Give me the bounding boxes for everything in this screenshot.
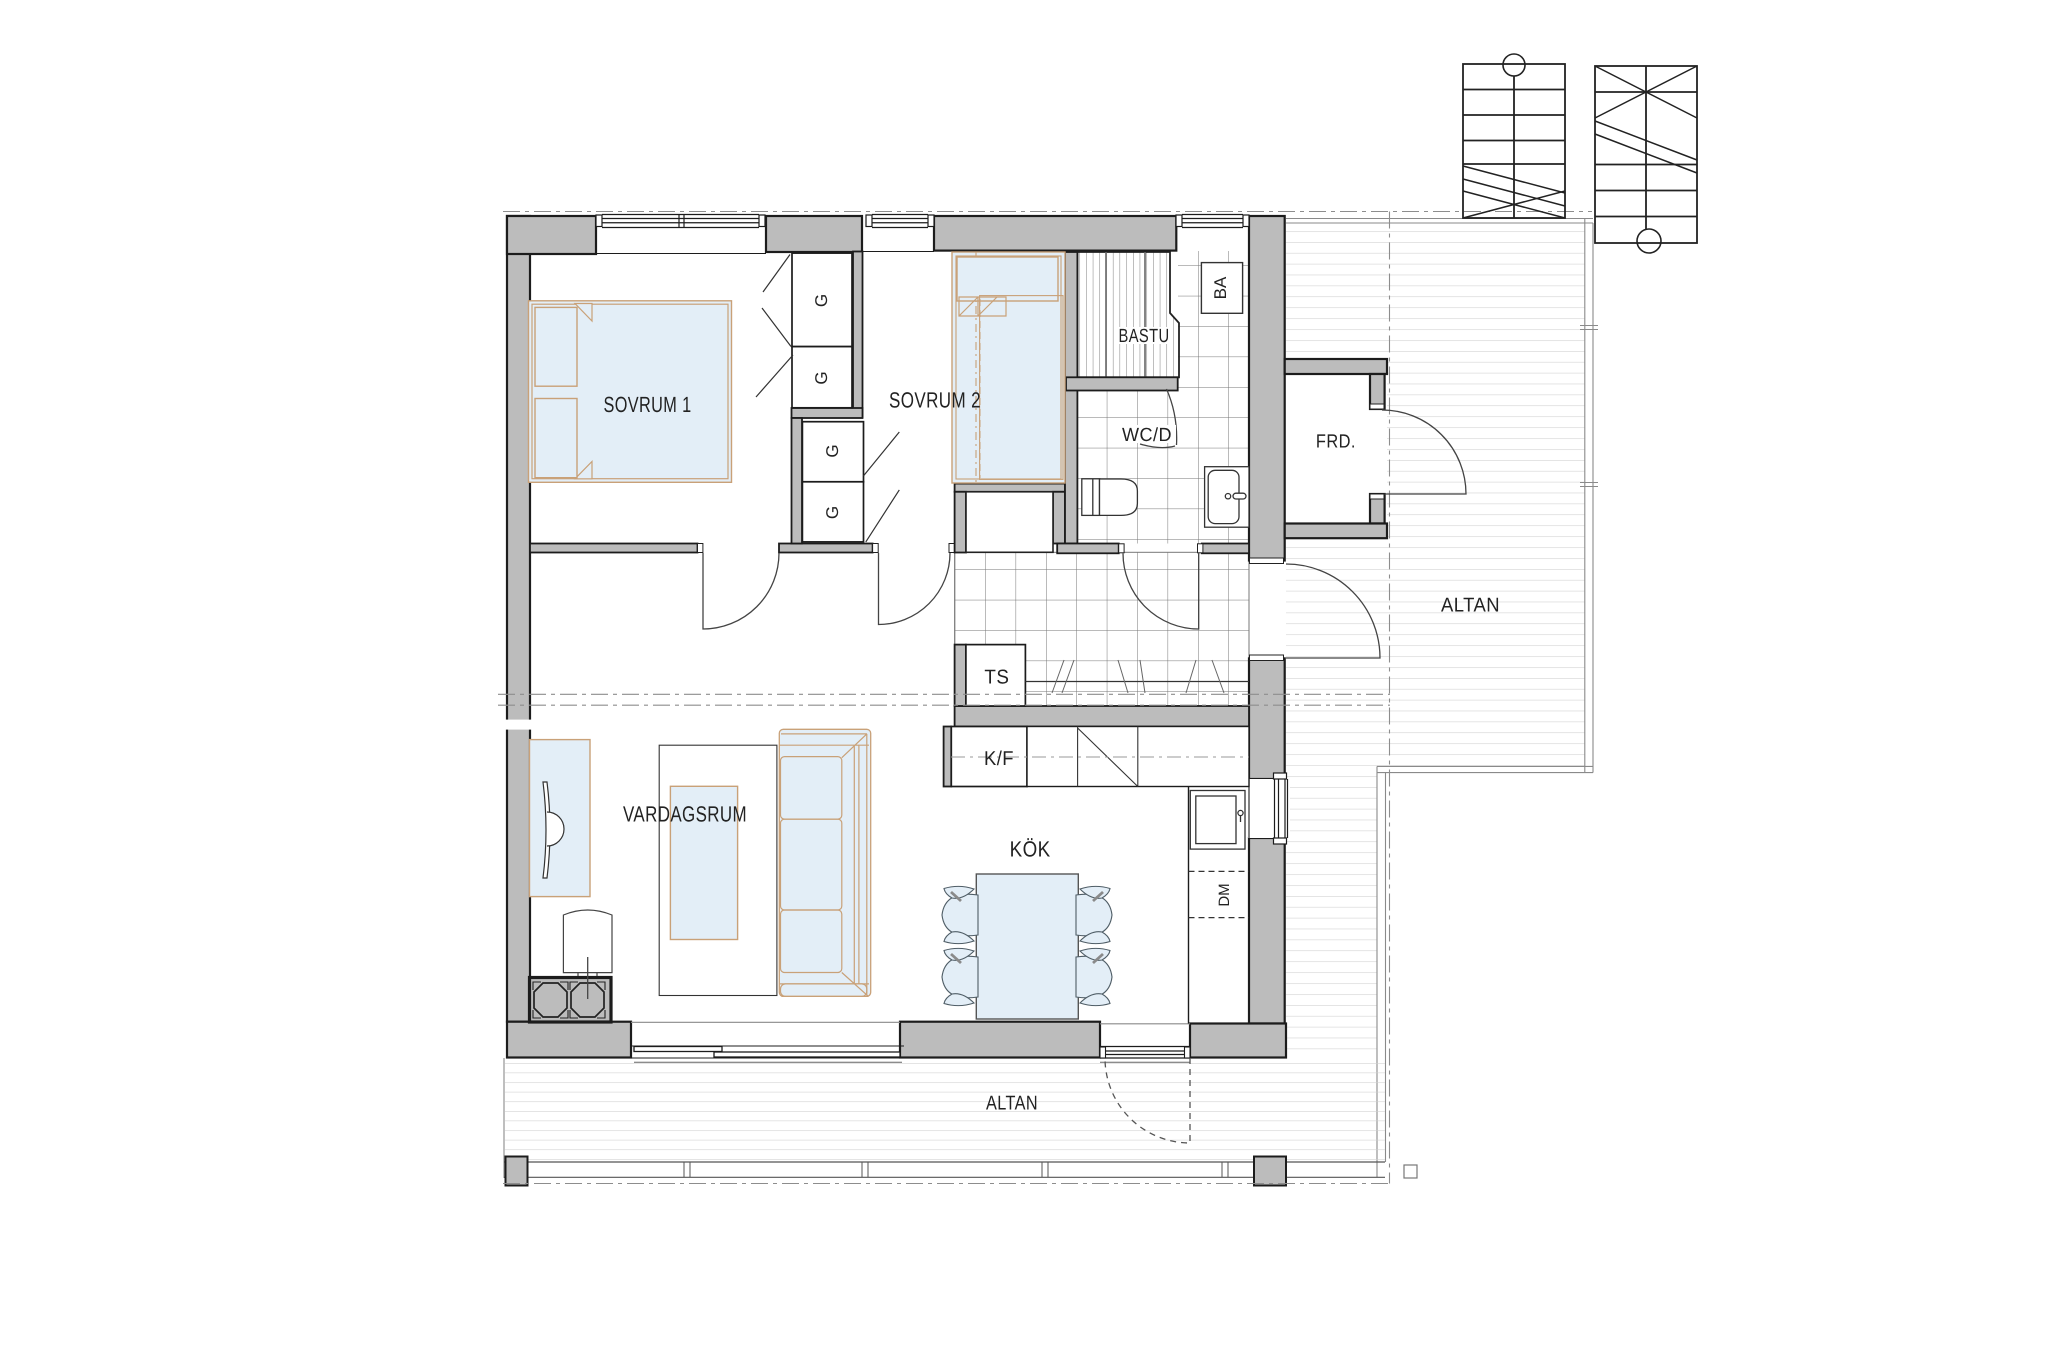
- svg-text:G: G: [812, 294, 831, 307]
- svg-text:WC/D: WC/D: [1122, 425, 1172, 446]
- svg-text:G: G: [823, 506, 842, 519]
- svg-text:ALTAN: ALTAN: [986, 1093, 1038, 1115]
- svg-text:G: G: [823, 444, 842, 457]
- svg-text:BA: BA: [1211, 276, 1230, 299]
- svg-text:FRD.: FRD.: [1316, 431, 1356, 452]
- svg-text:TS: TS: [984, 667, 1009, 689]
- svg-text:G: G: [812, 371, 831, 384]
- svg-text:SOVRUM 1: SOVRUM 1: [604, 392, 692, 417]
- svg-text:SOVRUM 2: SOVRUM 2: [889, 388, 981, 413]
- svg-text:DM: DM: [1216, 883, 1233, 906]
- svg-text:BASTU: BASTU: [1119, 326, 1170, 347]
- svg-text:ALTAN: ALTAN: [1441, 595, 1500, 617]
- svg-text:VARDAGSRUM: VARDAGSRUM: [623, 802, 747, 827]
- svg-text:KÖK: KÖK: [1010, 837, 1051, 862]
- svg-text:K/F: K/F: [984, 748, 1014, 770]
